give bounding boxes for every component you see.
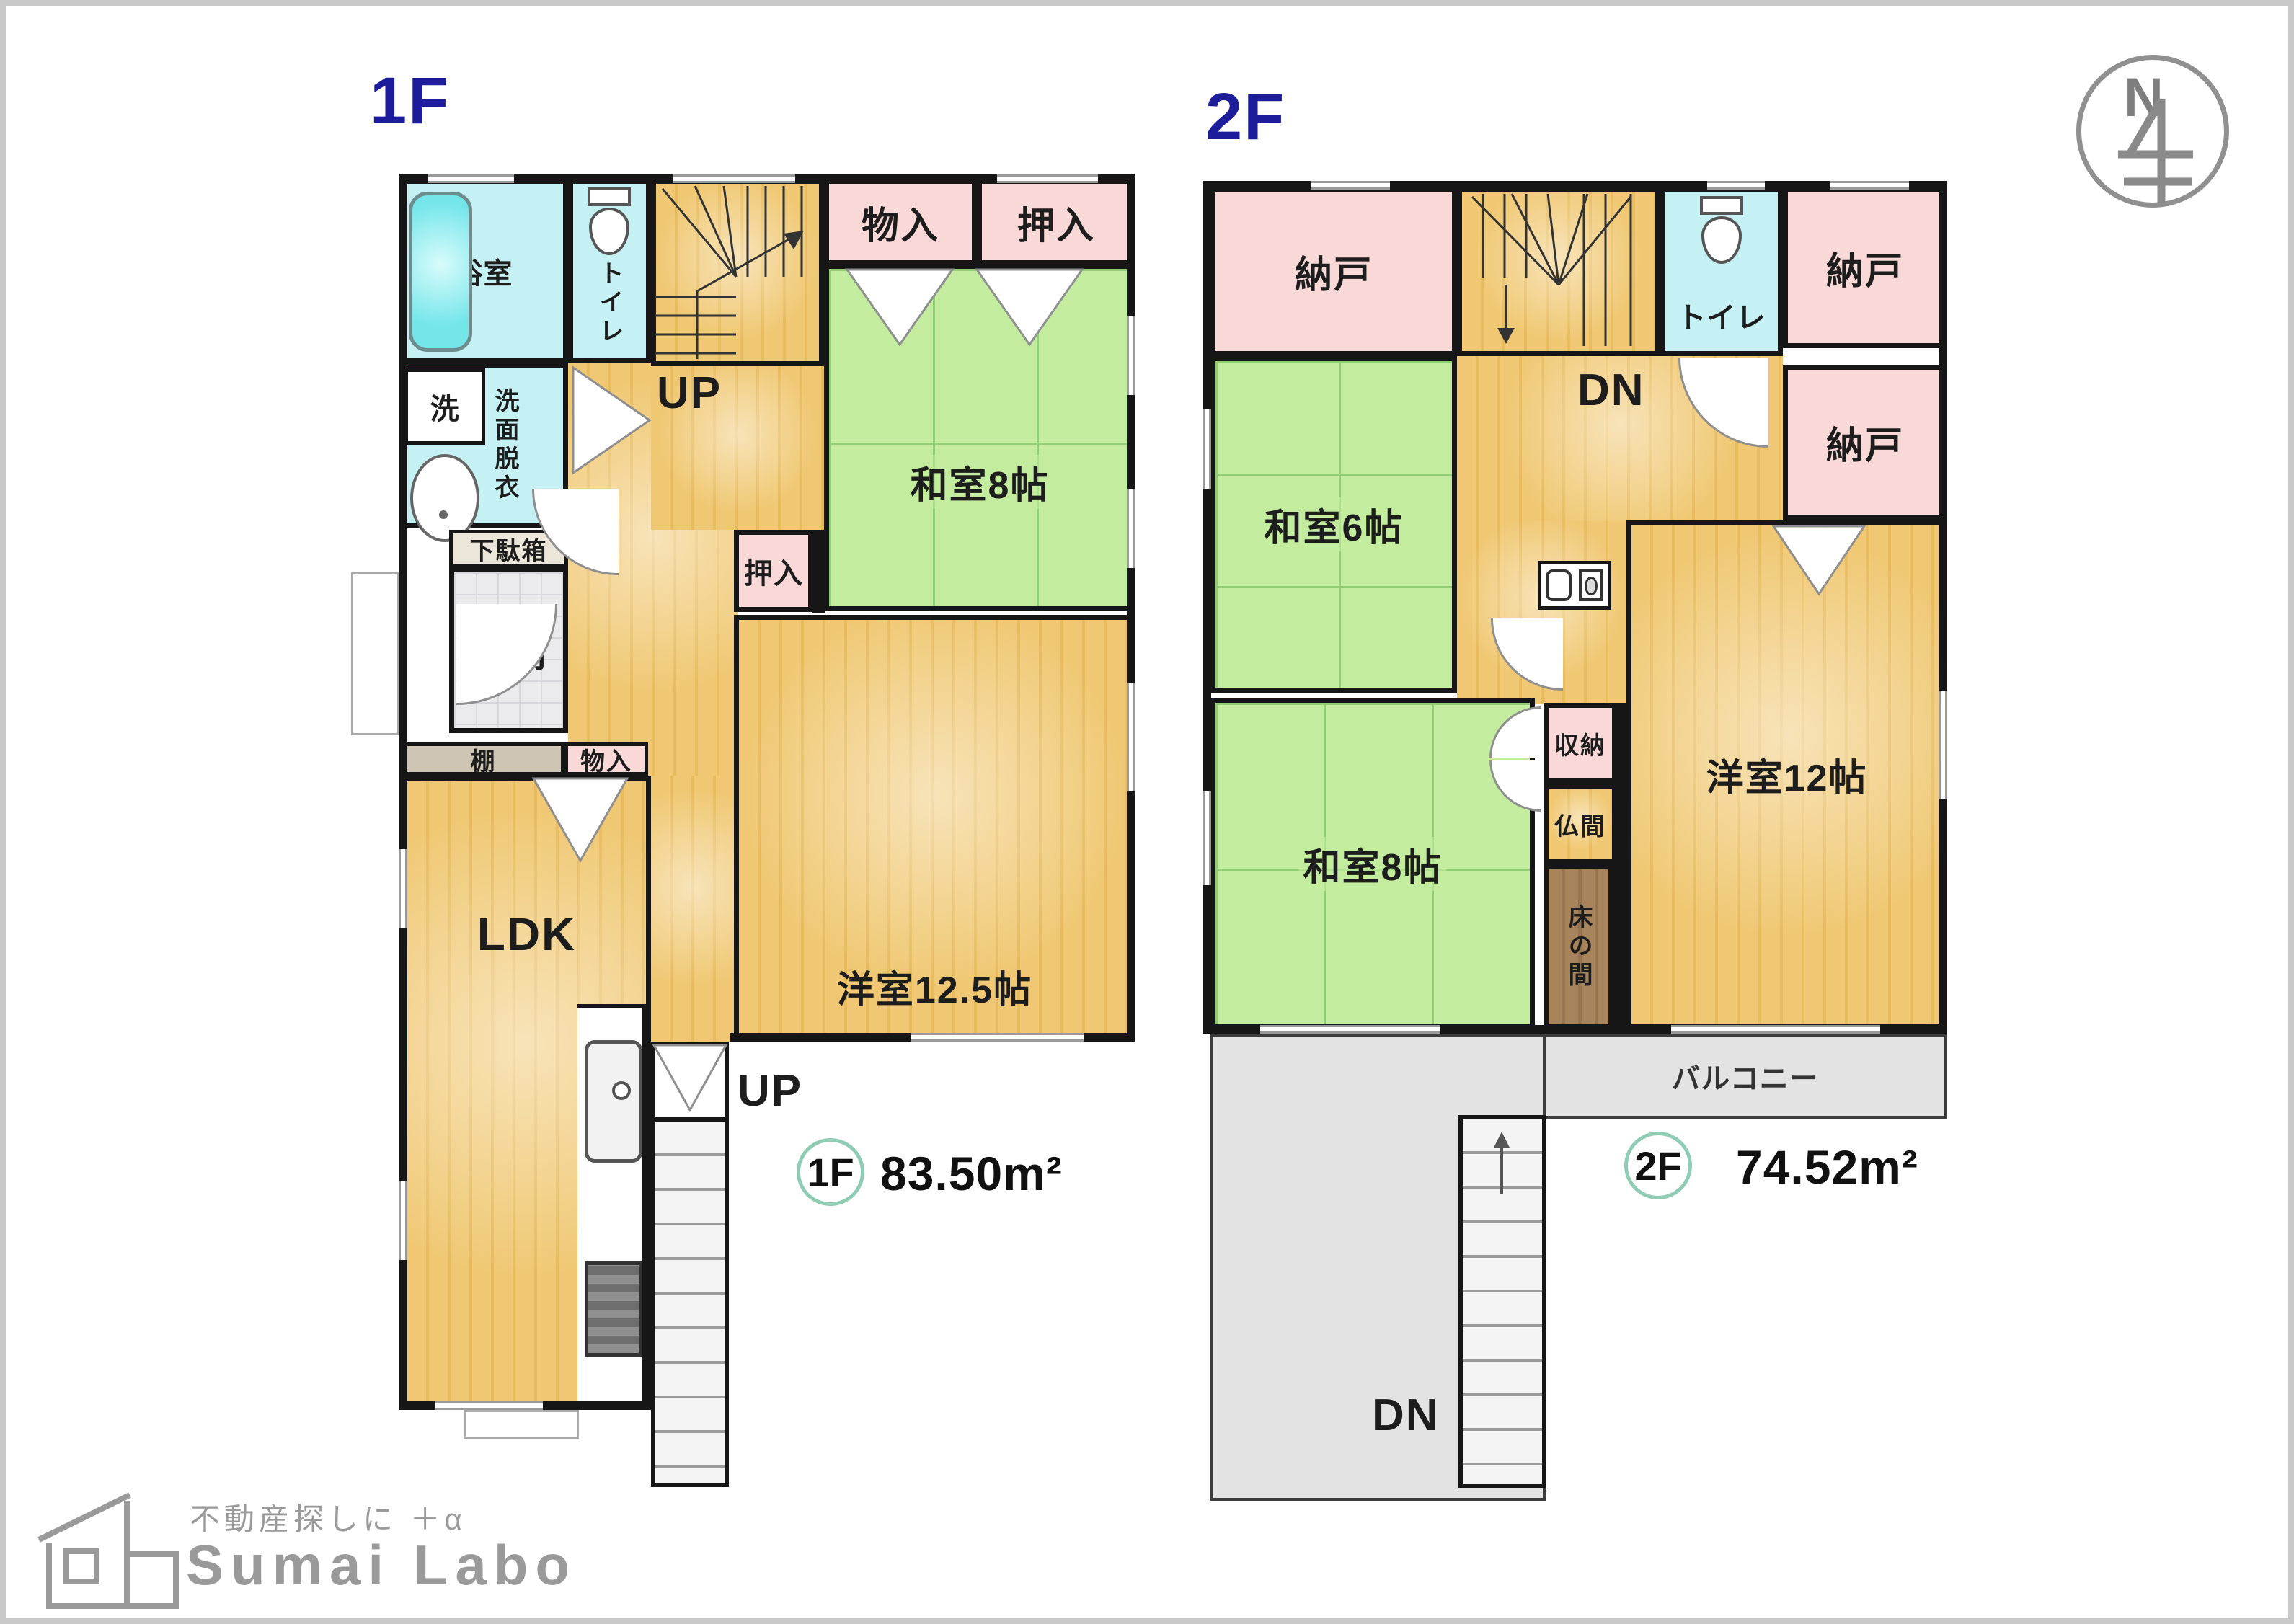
shuno-label: 収納 — [1554, 726, 1606, 761]
north-arrow-icon — [2076, 55, 2229, 208]
shoe-cabinet-label: 下駄箱 — [470, 531, 548, 567]
backdoor-step — [464, 1410, 579, 1439]
toilet-tank-1f-icon — [588, 187, 631, 206]
washbasin-drain-icon — [439, 510, 448, 519]
stairs-1f-icon — [655, 183, 820, 362]
kitchen-sink-icon — [585, 1040, 642, 1163]
floor2-plan: 納戸 DN トイレ 納戸 納戸 和室6帖 — [1203, 172, 1952, 1505]
floor1-plan: 浴室 トイレ UP 物入 押入 和室8帖 洗面脱 — [399, 172, 1145, 1501]
floor2-area-badge: 2F — [1624, 1132, 1692, 1199]
hall-vanity-bowl-icon — [1585, 577, 1598, 595]
washitsu8-2f-label: 和室8帖 — [1299, 837, 1447, 891]
floor2-area-text: 74.52m² — [1736, 1140, 1918, 1194]
window-1f-top-3 — [997, 174, 1098, 183]
storage-top-label: 物入 — [862, 195, 939, 249]
washitsu8-door-swing-2 — [975, 268, 1084, 347]
washitsu6-2f-label: 和室6帖 — [1260, 497, 1408, 551]
nando-tl-label: 納戸 — [1295, 244, 1373, 298]
room-closet-top: 押入 — [977, 179, 1135, 265]
floor1-badge-text: 1F — [807, 1149, 854, 1196]
storage-ldk-label: 物入 — [580, 742, 632, 777]
laundry-label: 洗 — [430, 386, 460, 427]
window-1f-right-1 — [1127, 316, 1135, 395]
window-2f-right-1 — [1939, 691, 1947, 799]
nando-r-label: 納戸 — [1826, 415, 1904, 469]
toilet-1f-label: トイレ — [592, 260, 627, 347]
closet-top-label: 押入 — [1017, 195, 1095, 249]
ext-stairs-up-label: UP — [738, 1065, 802, 1117]
room-shelf: 棚 — [402, 742, 564, 776]
room-laundry: 洗 — [404, 368, 485, 445]
window-1f-left-2 — [399, 1181, 407, 1260]
window-1f-top-1 — [428, 174, 514, 183]
ext-stairs-2f-arrow — [1491, 1130, 1513, 1195]
room-washitsu8-2f: 和室8帖 — [1210, 698, 1535, 1029]
hallway-1f-lower — [651, 776, 734, 1042]
room-nando-tr: 納戸 — [1783, 187, 1947, 348]
wall-2f-right — [1939, 181, 1947, 1034]
yoshitsu12-door-swing — [1772, 525, 1866, 597]
window-2f-top-1 — [1311, 181, 1390, 190]
window-1f-right-3 — [1127, 683, 1135, 791]
ext-stairs-dn-label: DN — [1372, 1390, 1440, 1441]
logo-name: Sumai Labo — [186, 1532, 577, 1598]
window-1f-bottom-2 — [435, 1401, 543, 1410]
senmen-label: 洗面脱衣 — [487, 388, 523, 503]
porch-step — [351, 572, 399, 735]
hall-vanity-sink-icon — [1546, 569, 1572, 601]
window-2f-top-3 — [1830, 181, 1909, 190]
stairs-2f-icon — [1461, 191, 1656, 352]
floor2-title: 2F — [1205, 79, 1285, 155]
yoshitsu-1f-label: 洋室12.5帖 — [837, 959, 1032, 1013]
ldk-label: LDK — [477, 908, 577, 961]
logo-house-icon — [35, 1485, 182, 1609]
balcony-label: バルコニー — [1671, 1055, 1818, 1097]
window-2f-bottom-1 — [1260, 1025, 1440, 1034]
window-1f-top-2 — [673, 174, 795, 183]
hall-door-swing-1f — [572, 366, 651, 474]
yoshitsu12-2f-label: 洋室12帖 — [1706, 747, 1868, 802]
room-toilet-1f: トイレ — [568, 179, 651, 363]
floor1-title: 1F — [370, 63, 450, 139]
room-shuno: 収納 — [1544, 703, 1617, 784]
floorplan-canvas: 1F 浴室 トイレ UP 物入 — [0, 0, 2294, 1624]
room-butsuma: 仏間 — [1544, 784, 1617, 864]
room-yoshitsu-1f: 洋室12.5帖 — [734, 615, 1135, 1042]
balcony-strip: バルコニー — [1543, 1034, 1947, 1119]
toilet-tank-2f-icon — [1700, 196, 1743, 215]
kitchen-faucet-icon — [612, 1081, 631, 1100]
shelf-label: 棚 — [471, 742, 497, 777]
ext-stairs-1f — [651, 1117, 729, 1487]
wall-1f-closet-gap — [812, 530, 825, 613]
room-closet-hall: 押入 — [734, 530, 813, 612]
tokonoma-label: 床の間 — [1561, 904, 1596, 990]
wall-2f-closet-gap — [1613, 703, 1626, 1029]
window-2f-top-2 — [1707, 181, 1765, 190]
window-2f-bottom-2 — [1671, 1025, 1880, 1034]
nando-tr-label: 納戸 — [1826, 241, 1904, 295]
washbasin-icon — [410, 454, 479, 542]
window-1f-left-1 — [399, 849, 407, 928]
ext-stairs-door-icon — [652, 1044, 727, 1116]
room-nando-r: 納戸 — [1783, 365, 1947, 520]
room-nando-tl: 納戸 — [1210, 187, 1457, 356]
room-storage-top: 物入 — [824, 179, 977, 265]
butsuma-label: 仏間 — [1554, 807, 1606, 842]
wall-1f-right — [1127, 174, 1135, 1042]
kitchen-stove-icon — [585, 1261, 642, 1357]
wall-2f-left — [1203, 181, 1211, 1034]
window-1f-right-2 — [1127, 489, 1135, 568]
washitsu8-1f-label: 和室8帖 — [906, 455, 1054, 509]
window-2f-left-2 — [1203, 791, 1211, 885]
closet-hall-label: 押入 — [744, 550, 803, 592]
window-2f-left-1 — [1203, 409, 1211, 489]
stairs-dn-2f-label: DN — [1577, 365, 1645, 416]
ldk-door-swing — [532, 777, 629, 864]
floor1-area-text: 83.50m² — [880, 1146, 1063, 1201]
room-storage-ldk: 物入 — [564, 742, 648, 776]
window-1f-bottom-1 — [911, 1033, 1084, 1042]
room-washitsu6-2f: 和室6帖 — [1210, 356, 1457, 693]
stairs-up-1f-label: UP — [657, 368, 722, 419]
stairs-2f-down-arrowhead — [1497, 328, 1515, 344]
room-tokonoma: 床の間 — [1544, 864, 1613, 1029]
washitsu8-door-swing-1 — [846, 268, 954, 347]
floor1-area-badge: 1F — [797, 1138, 864, 1206]
bathtub-icon — [409, 192, 472, 352]
floor2-badge-text: 2F — [1634, 1142, 1681, 1189]
toilet-2f-label: トイレ — [1678, 294, 1766, 336]
